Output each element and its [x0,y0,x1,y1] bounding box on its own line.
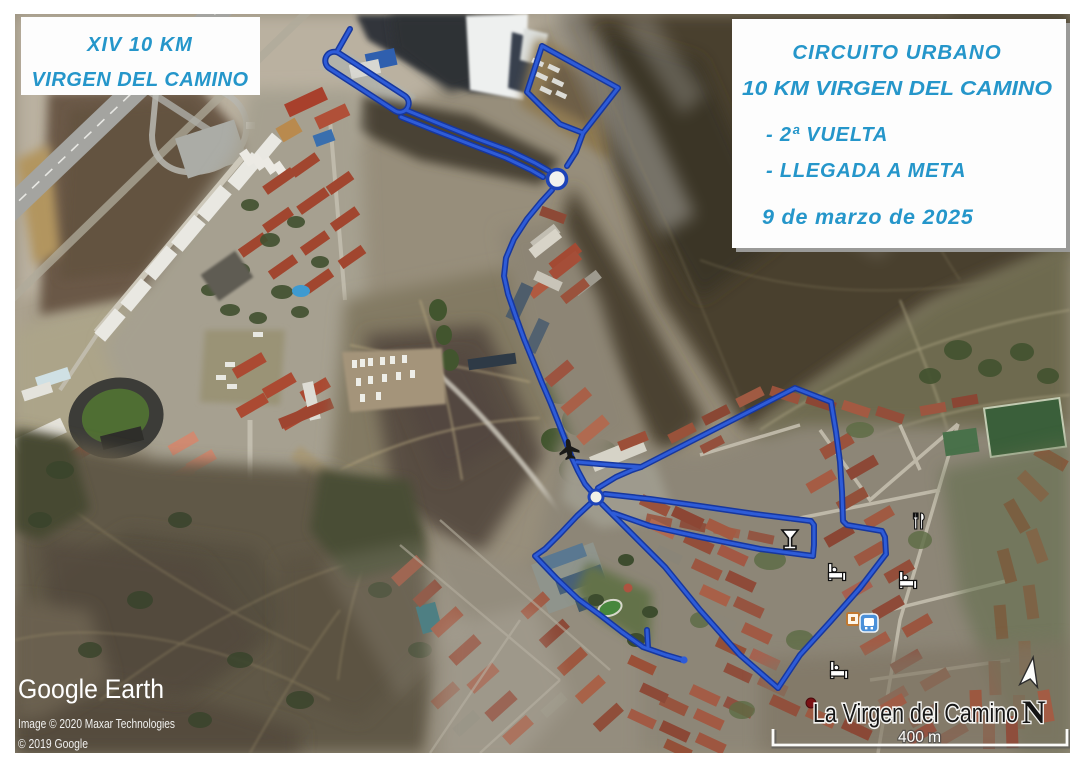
svg-text:CIRCUITO URBANO: CIRCUITO URBANO [792,41,1001,64]
svg-text:- LLEGADA A META: - LLEGADA A META [766,160,966,182]
svg-text:© 2019 Google: © 2019 Google [18,737,88,751]
svg-text:N: N [1022,695,1046,731]
svg-text:XIV 10 KM: XIV 10 KM [86,34,193,56]
svg-text:400 m: 400 m [898,729,941,746]
svg-text:Google Earth: Google Earth [18,674,164,704]
svg-text:La Virgen del Camino: La Virgen del Camino [813,700,1018,728]
svg-text:Image © 2020 Maxar Technologie: Image © 2020 Maxar Technologies [18,717,175,731]
svg-text:- 2ª VUELTA: - 2ª VUELTA [766,124,888,146]
svg-text:9 de marzo de 2025: 9 de marzo de 2025 [762,205,974,229]
svg-text:VIRGEN DEL CAMINO: VIRGEN DEL CAMINO [31,69,248,91]
svg-text:10 KM VIRGEN DEL CAMINO: 10 KM VIRGEN DEL CAMINO [742,77,1052,100]
